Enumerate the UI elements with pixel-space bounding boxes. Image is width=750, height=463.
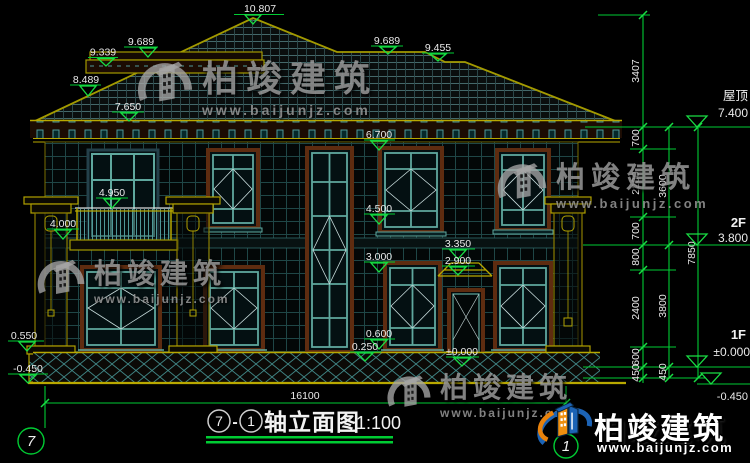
title-axis-end: 1 <box>247 413 255 429</box>
dim-450a: 450 <box>630 364 642 382</box>
level-left-eave: 7.650 <box>115 101 141 113</box>
window-2f-mid <box>376 148 446 236</box>
cad-elevation-canvas: 10.807 9.689 9.339 8.489 7.650 9.689 9.4… <box>0 0 750 463</box>
elevation-drawing: 10.807 9.689 9.339 8.489 7.650 9.689 9.4… <box>0 0 750 463</box>
level-left-slope: 8.489 <box>73 74 99 86</box>
window-1f-mid-left <box>205 267 263 350</box>
right-dimension-chain: 3407 700 2200 700 800 2400 600 450 3600 … <box>583 11 750 383</box>
window-2f-right <box>493 150 553 234</box>
dim-800: 800 <box>630 248 642 266</box>
roof-level-label: 屋顶 <box>723 89 749 103</box>
dim-3600: 3600 <box>657 174 669 198</box>
dim-700a: 700 <box>630 129 642 147</box>
title-underline-1 <box>206 436 393 439</box>
window-1f-mid-right <box>385 263 440 350</box>
level-plinth-mid: 0.250 <box>352 341 378 353</box>
title-name: 轴立面图 <box>264 409 360 435</box>
dim-16100: 16100 <box>290 390 319 402</box>
f2-value: 3.800 <box>718 231 748 245</box>
level-right-lower-ridge: 9.455 <box>425 42 451 54</box>
dim-3800: 3800 <box>657 294 669 318</box>
level-ground-left: -0.450 <box>13 363 43 375</box>
level-canopy-top: 3.350 <box>445 238 471 250</box>
title-scale: 1:100 <box>356 413 401 433</box>
title-separator: - <box>232 414 237 431</box>
window-2f-left <box>204 150 262 232</box>
dim-2200: 2200 <box>630 171 642 195</box>
level-plinth-left: 0.550 <box>11 330 37 342</box>
level-canopy-bottom: 2.900 <box>445 255 471 267</box>
window-1f-right <box>495 263 551 350</box>
brand-logo-url: www.baijunjz.com <box>597 440 733 455</box>
dim-2400: 2400 <box>630 296 642 320</box>
level-left-upper: 9.689 <box>128 36 154 48</box>
level-entry: ±0.000 <box>446 346 478 358</box>
dim-700b: 700 <box>630 222 642 240</box>
level-balcony: 4.000 <box>50 218 76 230</box>
axis-bubble-7-num: 7 <box>27 433 36 450</box>
f2-label: 2F <box>731 215 746 230</box>
balcony <box>70 208 178 250</box>
stair-window <box>307 148 352 352</box>
f1-value: ±0.000 <box>713 345 750 359</box>
f1-label: 1F <box>731 327 746 342</box>
dim-600: 600 <box>630 348 642 366</box>
below-grade-value: -0.450 <box>717 391 748 403</box>
level-head-1f: 3.000 <box>366 251 392 263</box>
roof-level-value: 7.400 <box>718 106 748 120</box>
dim-3407: 3407 <box>630 59 642 83</box>
title-axis-start: 7 <box>215 413 223 429</box>
title-underline-2 <box>206 441 393 444</box>
level-rail: 4.950 <box>99 187 125 199</box>
eave-fascia <box>30 121 622 143</box>
level-sill-2f: 4.500 <box>366 203 392 215</box>
level-left-ledge: 9.339 <box>90 47 116 59</box>
window-1f-left <box>82 267 160 350</box>
plinth <box>28 353 626 384</box>
drawing-title: 7 - 1 轴立面图 1:100 <box>206 409 401 444</box>
level-sill-1f: 0.600 <box>366 328 392 340</box>
level-eave-soffit: 6.700 <box>366 129 392 141</box>
level-apex: 10.807 <box>244 3 276 15</box>
dim-450b: 450 <box>657 363 669 381</box>
brand-logo-icon <box>534 392 596 458</box>
level-right-ridge: 9.689 <box>374 35 400 47</box>
